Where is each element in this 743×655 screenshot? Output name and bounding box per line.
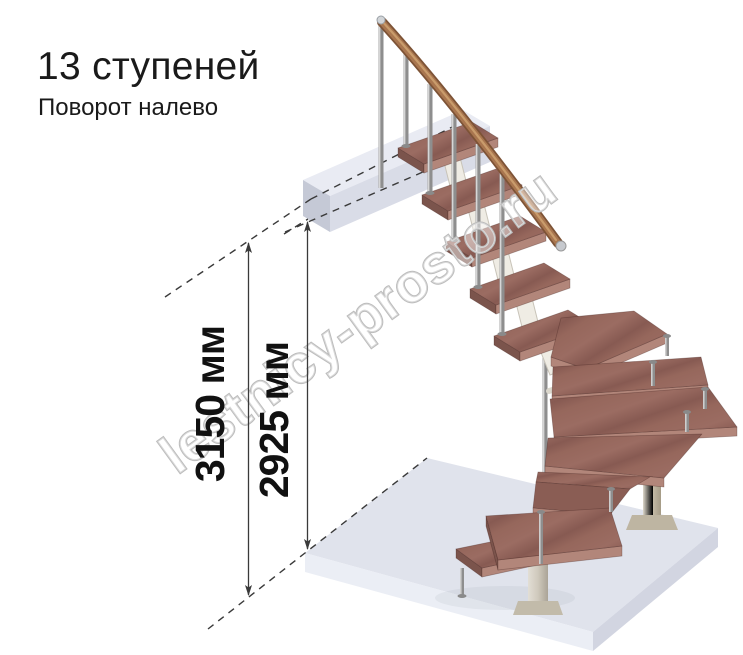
- dimension-label-overall-height: 3150 мм: [187, 326, 233, 482]
- page-title: 13 ступеней: [37, 46, 260, 88]
- staircase-diagram-page: lestnicy-prosto.ru 3150 мм 2925 мм 13 ст…: [0, 0, 743, 655]
- handrail-top-cap: [377, 16, 385, 24]
- winder-steps: [533, 311, 737, 523]
- page-subtitle: Поворот налево: [38, 94, 218, 121]
- reference-dashed-lines: [165, 199, 311, 297]
- handrail-end-cap: [556, 241, 566, 251]
- dimension-label-floor-to-ceiling: 2925 мм: [251, 342, 297, 498]
